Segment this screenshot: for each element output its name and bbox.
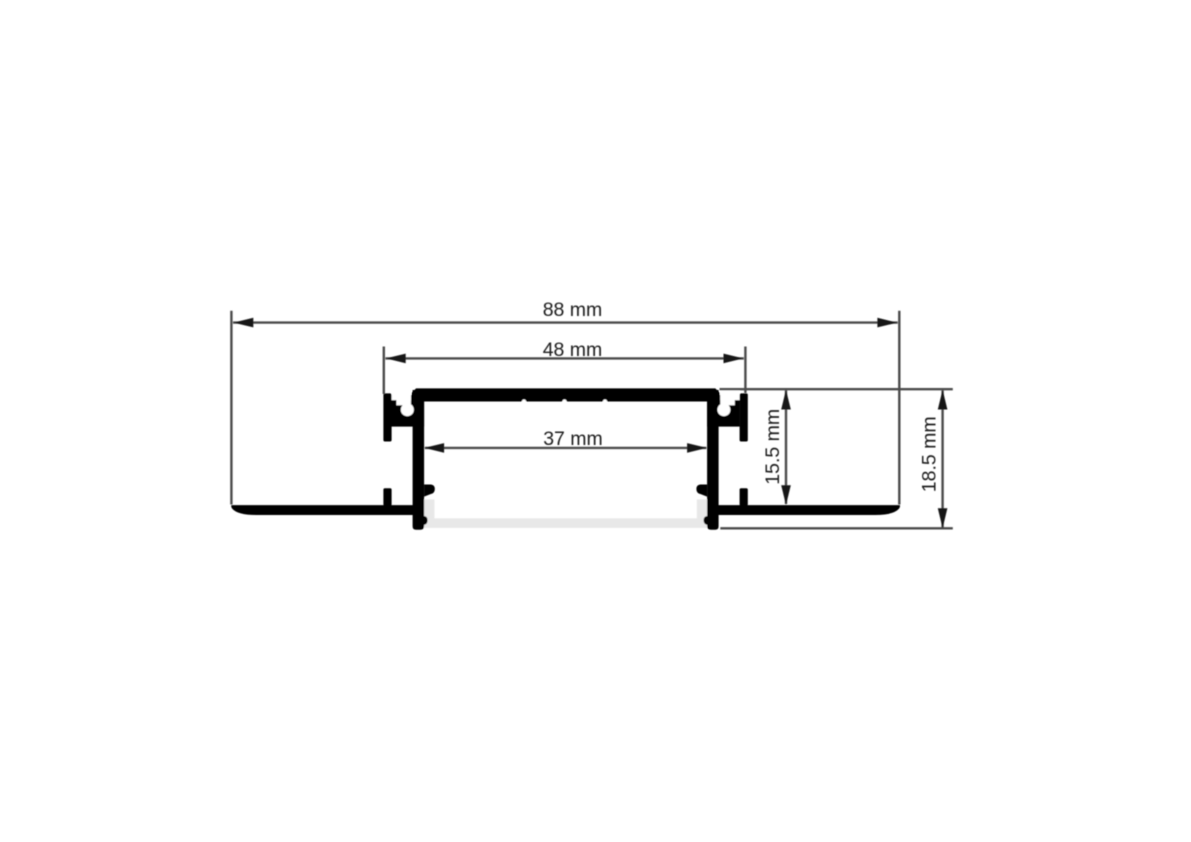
svg-text:37 mm: 37 mm [543,428,603,450]
svg-text:15.5 mm: 15.5 mm [762,409,784,485]
svg-text:48 mm: 48 mm [543,339,603,361]
svg-text:88 mm: 88 mm [543,299,603,321]
svg-text:18.5 mm: 18.5 mm [919,416,941,492]
